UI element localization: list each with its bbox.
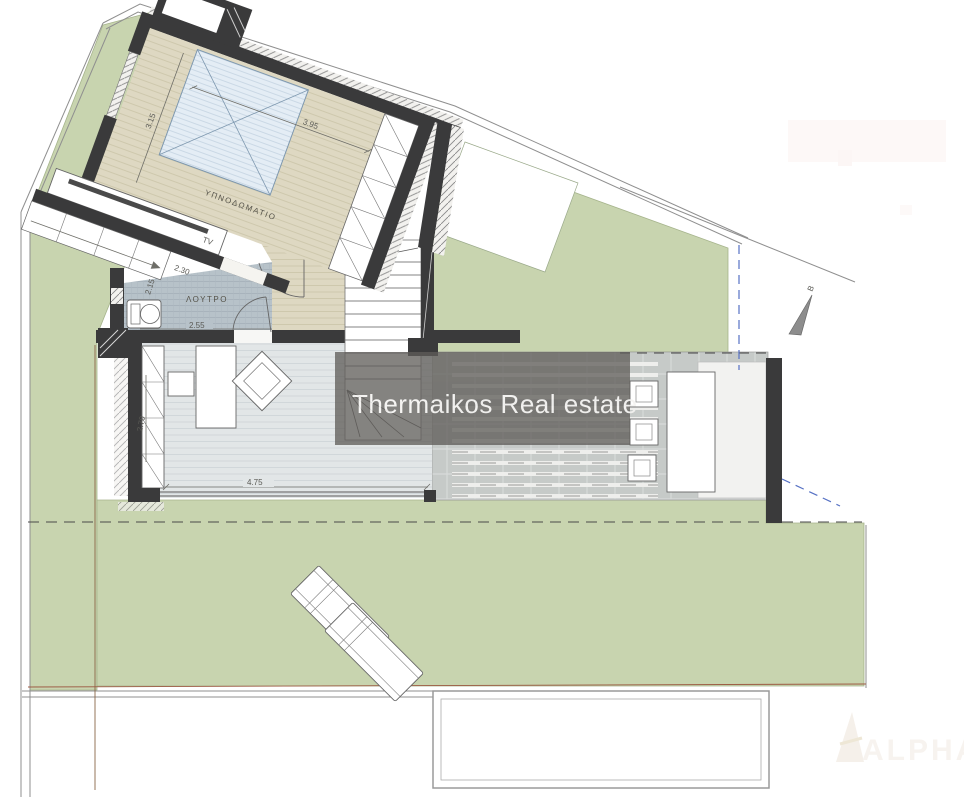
terrace-wall-bar xyxy=(766,358,782,523)
blue-dashed-line-slanted xyxy=(782,479,840,506)
dim-bathroom-width: 2.55 xyxy=(189,321,205,330)
watermark-banner: Thermaikos Real estate xyxy=(335,352,638,445)
garden-lawn xyxy=(97,500,864,686)
faint-watermark-top-right xyxy=(788,120,946,215)
desk xyxy=(196,346,236,428)
lower-plot-outline xyxy=(433,691,769,788)
section-marker-label: B xyxy=(806,284,816,293)
watermark-text: Thermaikos Real estate xyxy=(352,389,638,419)
section-arrow-icon xyxy=(789,295,812,335)
outdoor-table xyxy=(667,372,715,492)
bathroom-label: ΛΟΥΤΡΟ xyxy=(186,295,228,304)
alpha-watermark-text: ALPHA xyxy=(862,734,964,767)
floor-plan-image: B 4.75 2 xyxy=(0,0,964,799)
toilet-icon xyxy=(127,300,161,328)
floor-plan-drawing: B 4.75 2 xyxy=(0,0,964,799)
dim-living-width: 4.75 xyxy=(247,478,263,487)
desk-chair xyxy=(168,372,194,396)
faint-watermark-alpha: ALPHA xyxy=(836,712,964,767)
bathroom-bottom-wall xyxy=(96,330,520,343)
